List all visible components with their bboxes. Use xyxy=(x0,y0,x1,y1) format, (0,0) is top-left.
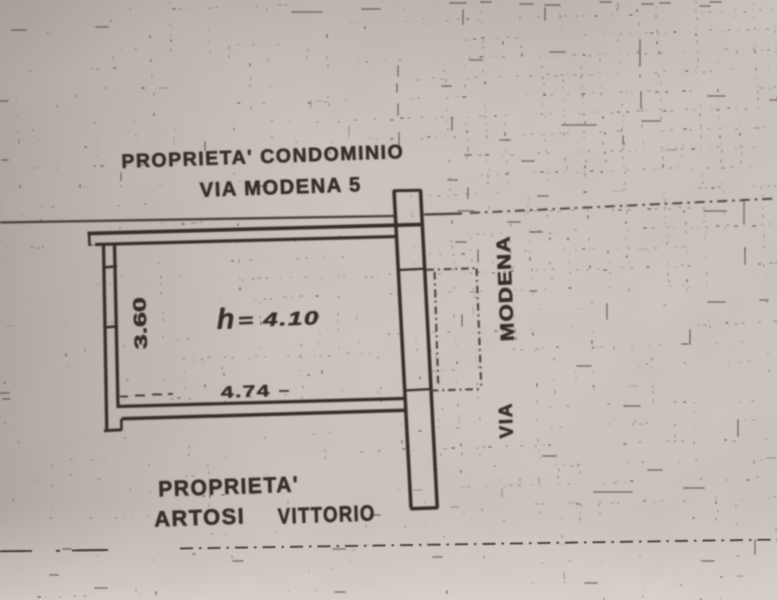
svg-text:PROPRIETA': PROPRIETA' xyxy=(158,472,300,502)
svg-text:VIA: VIA xyxy=(495,402,518,439)
svg-text:= 4.10: = 4.10 xyxy=(237,308,320,332)
svg-text:h: h xyxy=(216,303,235,336)
svg-text:3.60: 3.60 xyxy=(129,296,151,349)
svg-text:ARTOSI: ARTOSI xyxy=(154,503,246,531)
svg-text:VITTORIO: VITTORIO xyxy=(277,500,376,528)
svg-text:4.74: 4.74 xyxy=(221,382,272,402)
